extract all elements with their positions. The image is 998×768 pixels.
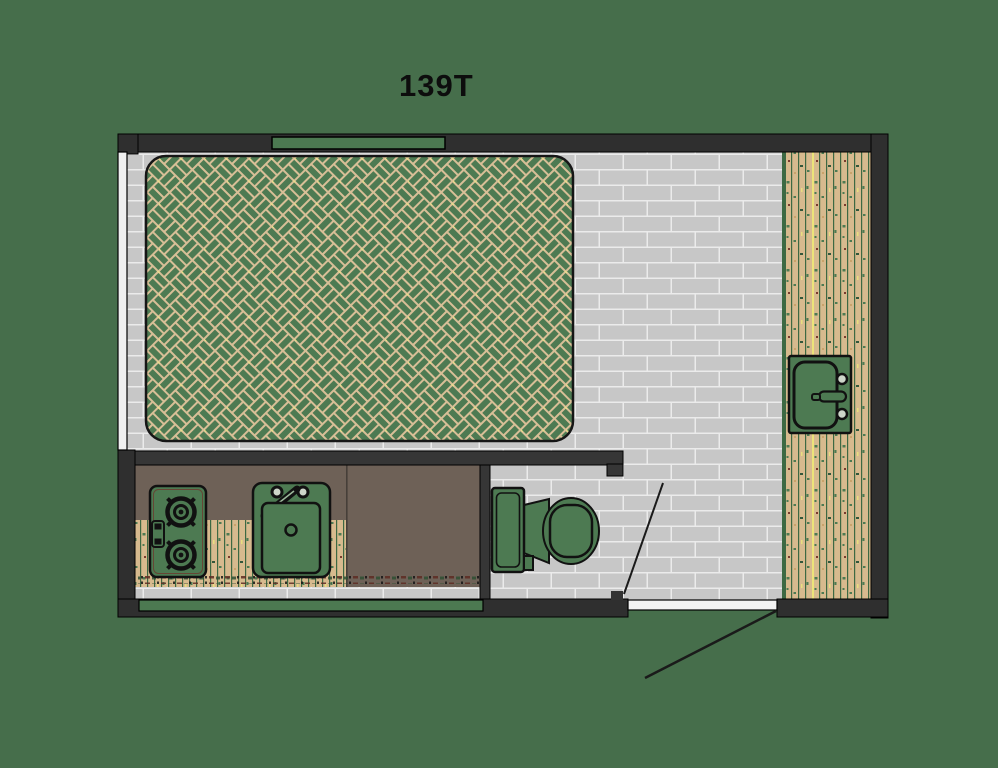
door-hinge-block (611, 591, 623, 600)
counter-divider (346, 465, 348, 587)
floorplan-page: 139T (0, 0, 998, 768)
window-left (118, 152, 127, 450)
stove-cooktop (150, 486, 206, 577)
wall-top (118, 134, 886, 152)
bed (146, 156, 573, 441)
wall-bottom-right (777, 599, 888, 617)
vanity-sink-faucet (819, 392, 846, 402)
toilet (492, 488, 599, 572)
door-threshold (628, 600, 777, 610)
door-leaf-exterior (645, 611, 776, 678)
counter-cabinet-right (347, 465, 481, 587)
toilet-bowl (543, 498, 599, 564)
bathroom-wall-horizontal (133, 451, 623, 465)
stove-handle (152, 521, 164, 547)
wall-left-bottom (118, 450, 135, 617)
vanity-sink-knob-bottom (837, 409, 847, 419)
kitchen-sink (253, 483, 330, 577)
window-top (272, 137, 445, 149)
window-bottom (139, 600, 483, 611)
wall-left-top-block (118, 134, 138, 154)
kitchen-sink-knob-left (272, 487, 282, 497)
kitchen-sink-drain (286, 525, 297, 536)
vanity-sink-knob-top (837, 374, 847, 384)
bathroom-wall-vertical (480, 465, 490, 600)
wood-floor-edge (782, 150, 786, 600)
vanity-sink-faucet-spout (812, 394, 820, 400)
bathroom-wall-end-stub (607, 464, 623, 476)
kitchen-sink-basin (262, 503, 320, 573)
wall-right (871, 134, 888, 618)
toilet-pedal (524, 556, 533, 570)
floorplan-drawing (0, 0, 998, 768)
vanity-sink (789, 356, 851, 433)
